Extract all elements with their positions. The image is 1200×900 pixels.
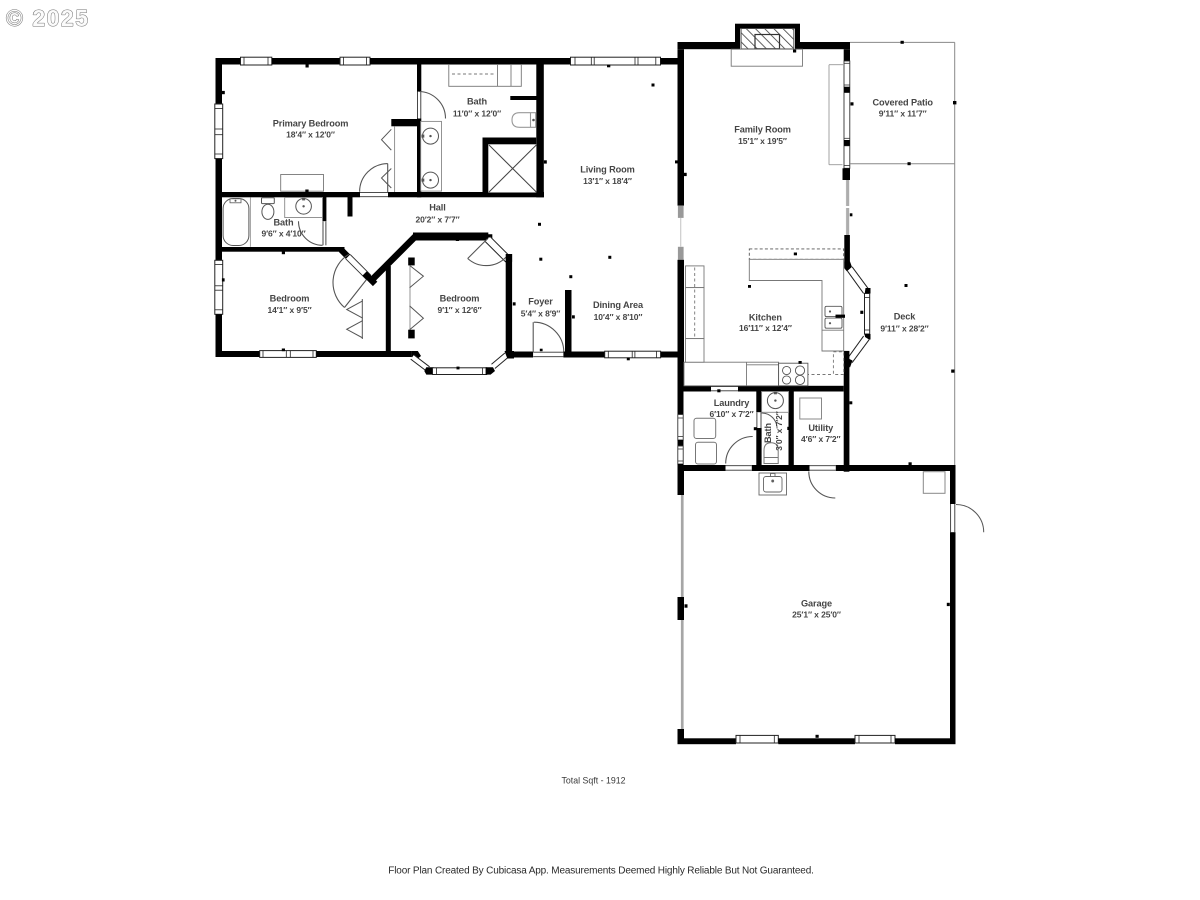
svg-text:3′0″ x 7′2″: 3′0″ x 7′2″ <box>774 411 784 451</box>
svg-text:20′2″ x 7′7″: 20′2″ x 7′7″ <box>415 215 459 225</box>
svg-text:13′1″ x 18′4″: 13′1″ x 18′4″ <box>583 176 632 186</box>
svg-text:16′11″ x 12′4″: 16′11″ x 12′4″ <box>739 323 792 333</box>
svg-text:9′11″ x 28′2″: 9′11″ x 28′2″ <box>880 324 928 334</box>
svg-text:14′1″ x 9′5″: 14′1″ x 9′5″ <box>267 305 311 315</box>
svg-text:9′11″ x 11′7″: 9′11″ x 11′7″ <box>879 109 927 119</box>
svg-text:Floor Plan Created By Cubicasa: Floor Plan Created By Cubicasa App. Meas… <box>388 866 813 877</box>
svg-text:Bath: Bath <box>763 423 773 444</box>
svg-text:Utility: Utility <box>808 423 834 433</box>
svg-text:Family Room: Family Room <box>734 125 791 135</box>
svg-text:Deck: Deck <box>894 312 917 322</box>
svg-text:Foyer: Foyer <box>528 297 553 307</box>
svg-text:Garage: Garage <box>801 599 832 609</box>
svg-text:Covered Patio: Covered Patio <box>872 98 933 108</box>
svg-text:15′1″ x 19′5″: 15′1″ x 19′5″ <box>738 136 787 146</box>
svg-text:Hall: Hall <box>429 203 445 213</box>
svg-text:Dining Area: Dining Area <box>593 300 644 310</box>
svg-text:© 2025: © 2025 <box>6 5 90 31</box>
svg-text:Laundry: Laundry <box>714 398 751 408</box>
svg-text:Bedroom: Bedroom <box>440 294 480 304</box>
svg-text:Primary Bedroom: Primary Bedroom <box>273 119 349 129</box>
svg-text:4′6″ x 7′2″: 4′6″ x 7′2″ <box>801 434 841 444</box>
svg-text:18′4″ x 12′0″: 18′4″ x 12′0″ <box>286 130 335 140</box>
svg-text:Living Room: Living Room <box>580 165 635 175</box>
svg-text:10′4″ x 8′10″: 10′4″ x 8′10″ <box>594 312 643 322</box>
svg-text:25′1″ x 25′0″: 25′1″ x 25′0″ <box>792 610 841 620</box>
svg-text:6′10″ x 7′2″: 6′10″ x 7′2″ <box>709 409 753 419</box>
svg-text:Kitchen: Kitchen <box>749 313 782 323</box>
svg-text:Total Sqft - 1912: Total Sqft - 1912 <box>561 776 625 786</box>
svg-text:9′1″ x 12′6″: 9′1″ x 12′6″ <box>437 305 481 315</box>
svg-text:11′0″ x 12′0″: 11′0″ x 12′0″ <box>453 109 501 119</box>
svg-text:5′4″ x 8′9″: 5′4″ x 8′9″ <box>521 309 561 319</box>
svg-text:Bath: Bath <box>467 97 488 107</box>
svg-text:Bath: Bath <box>273 218 294 228</box>
svg-text:Bedroom: Bedroom <box>270 294 310 304</box>
svg-text:9′6″ x 4′10″: 9′6″ x 4′10″ <box>261 229 305 239</box>
